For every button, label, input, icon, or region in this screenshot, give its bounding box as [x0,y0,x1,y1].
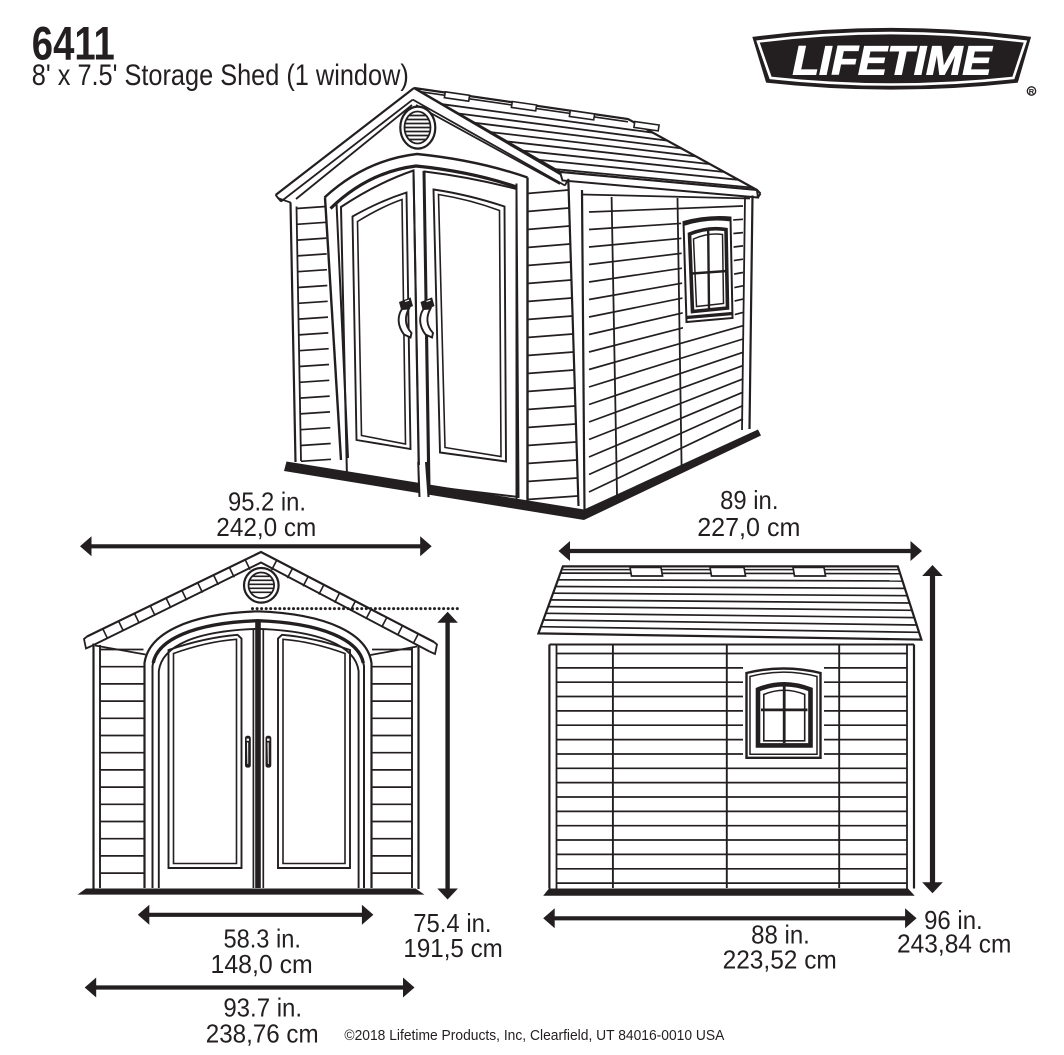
svg-text:238,76 cm: 238,76 cm [206,1019,319,1049]
svg-text:LIFETIME: LIFETIME [793,38,994,84]
svg-text:8' x 7.5' Storage Shed (1 wind: 8' x 7.5' Storage Shed (1 window) [32,59,409,92]
svg-text:R: R [1029,87,1035,96]
svg-text:89 in.: 89 in. [720,485,778,515]
svg-text:©2018 Lifetime Products, Inc,: ©2018 Lifetime Products, Inc, Clearfield… [344,1028,724,1044]
svg-text:242,0 cm: 242,0 cm [216,512,316,542]
svg-text:243,84 cm: 243,84 cm [897,929,1011,959]
svg-text:148,0 cm: 148,0 cm [211,949,313,979]
svg-text:191,5 cm: 191,5 cm [403,933,502,963]
svg-text:227,0 cm: 227,0 cm [697,512,800,542]
svg-text:223,52 cm: 223,52 cm [723,945,837,975]
